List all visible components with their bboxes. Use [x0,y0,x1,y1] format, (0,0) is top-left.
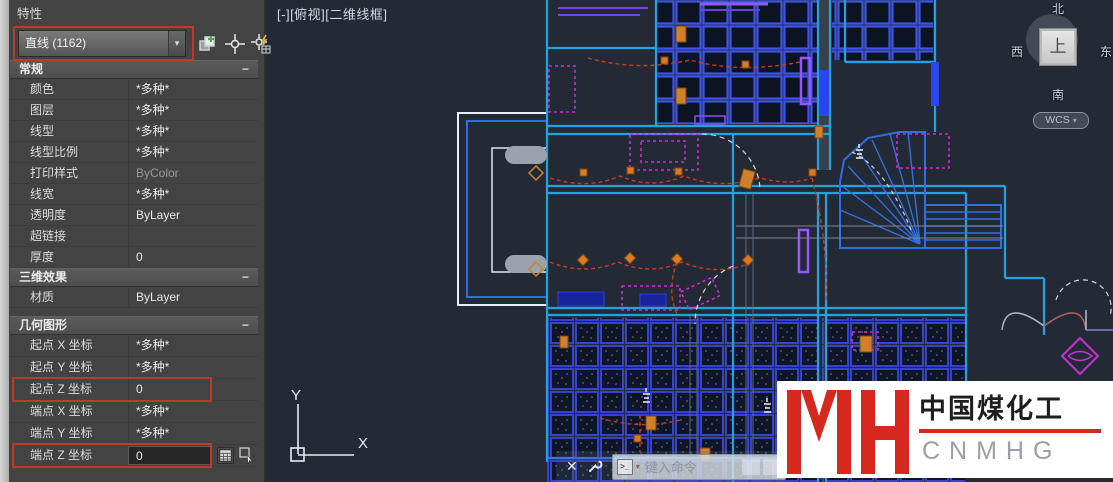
palette-title: 特性 [17,3,42,22]
section-title: 常规 [10,61,43,78]
section-title: 几何图形 [10,317,67,334]
property-label: 打印样式 [10,163,128,183]
yh-logo-icon [785,386,911,474]
property-label: 线型 [10,121,128,141]
close-icon[interactable]: ✕ [556,458,586,475]
palette-grip[interactable] [0,0,9,482]
customize-wrench-icon[interactable] [586,458,604,476]
wcs-dropdown[interactable]: WCS ▾ [1033,112,1089,129]
command-prompt-icon: >_ [617,459,633,475]
object-type-value: 直线 (1162) [19,31,168,56]
viewport-label: [-][俯视][二维线框] [277,4,388,23]
property-row[interactable]: 厚度0 [10,247,258,268]
collapse-icon[interactable]: − [242,61,258,78]
property-row[interactable]: 端点 Y 坐标*多种* [10,423,258,445]
command-placeholder: 键入命令 [645,457,739,476]
viewport-visual-style-menu[interactable]: [二维线框] [325,7,387,22]
command-history-button[interactable] [742,459,760,475]
property-label: 起点 Y 坐标 [10,357,128,378]
command-line-bar: ✕ >_ ▾ 键入命令 [556,451,786,482]
property-value[interactable]: 0 [128,247,258,267]
pick-point-icon[interactable] [239,447,256,464]
property-row[interactable]: 透明度ByLayer [10,205,258,226]
property-value[interactable]: *多种* [128,357,258,378]
property-row[interactable]: 图层*多种* [10,100,258,121]
property-section: 常规−颜色*多种*图层*多种*线型*多种*线型比例*多种*打印样式ByColor… [10,60,258,268]
watermark: 中国煤化工 CNMHG [777,381,1113,478]
prop-sections: 常规−颜色*多种*图层*多种*线型*多种*线型比例*多种*打印样式ByColor… [10,60,258,467]
property-value[interactable]: ByLayer [128,205,258,225]
section-title: 三维效果 [10,269,67,286]
collapse-icon[interactable]: − [242,269,258,286]
calculator-icon[interactable] [217,447,234,464]
properties-palette: 特性 直线 (1162) ▾ 常规−颜色*多种*图层*多种*线型*多种*线型比例… [0,0,266,482]
property-section: 三维效果−材质ByLayer [10,268,258,308]
property-row[interactable]: 材质ByLayer [10,287,258,308]
property-row[interactable]: 颜色*多种* [10,79,258,100]
pickadd-toggle-icon[interactable] [196,33,218,55]
property-value[interactable]: ByColor [128,163,258,183]
property-row[interactable]: 起点 Z 坐标0 [10,379,258,401]
object-type-dropdown[interactable]: 直线 (1162) ▾ [18,30,186,57]
viewcube-west-label[interactable]: 西 [1011,43,1023,60]
property-value[interactable]: *多种* [128,79,258,99]
collapse-icon[interactable]: − [242,317,258,334]
watermark-abbr: CNMHG [922,437,1061,466]
property-value[interactable]: *多种* [128,401,258,422]
ucs-x-label: X [358,435,368,452]
property-label: 线型比例 [10,142,128,162]
chevron-down-icon: ▾ [1073,116,1077,125]
property-row[interactable]: 起点 X 坐标*多种* [10,335,258,357]
section-header[interactable]: 三维效果− [10,268,258,287]
property-label: 线宽 [10,184,128,204]
property-row[interactable]: 端点 X 坐标*多种* [10,401,258,423]
property-label: 端点 X 坐标 [10,401,128,422]
recent-commands-chevron-icon[interactable]: ▾ [636,462,640,471]
property-label: 材质 [10,287,128,307]
viewport-controls-menu[interactable]: [-] [277,7,290,22]
property-row[interactable]: 线宽*多种* [10,184,258,205]
property-row[interactable]: 端点 Z 坐标0 [10,445,258,467]
chevron-down-icon[interactable]: ▾ [168,31,185,56]
viewcube[interactable]: 上 北 南 西 东 WCS ▾ [1014,2,1112,134]
autocad-window: [-][俯视][二维线框] 上 北 南 西 东 WCS ▾ Y X ✕ >_ ▾… [0,0,1113,482]
property-value[interactable]: *多种* [128,423,258,444]
property-label: 图层 [10,100,128,120]
property-label: 颜色 [10,79,128,99]
property-value[interactable]: *多种* [128,184,258,204]
ucs-y-label: Y [291,387,301,404]
property-value[interactable] [128,226,258,246]
property-label: 端点 Y 坐标 [10,423,128,444]
property-label: 透明度 [10,205,128,225]
property-row[interactable]: 超链接 [10,226,258,247]
property-value[interactable]: *多种* [128,121,258,141]
property-value[interactable]: *多种* [128,142,258,162]
property-label: 起点 Z 坐标 [10,379,128,400]
property-row[interactable]: 线型比例*多种* [10,142,258,163]
viewcube-south-label[interactable]: 南 [1052,86,1064,103]
property-value[interactable]: 0 [128,446,212,465]
quick-select-icon[interactable] [250,33,272,55]
property-row[interactable]: 线型*多种* [10,121,258,142]
property-label: 起点 X 坐标 [10,335,128,356]
property-section: 几何图形−起点 X 坐标*多种*起点 Y 坐标*多种*起点 Z 坐标0端点 X … [10,316,258,467]
property-label: 端点 Z 坐标 [10,445,128,466]
property-value[interactable]: *多种* [128,100,258,120]
property-row[interactable]: 打印样式ByColor [10,163,258,184]
property-value[interactable]: ByLayer [128,287,258,307]
command-input[interactable]: >_ ▾ 键入命令 [612,454,786,480]
property-label: 厚度 [10,247,128,267]
section-header[interactable]: 几何图形− [10,316,258,335]
select-objects-icon[interactable] [224,33,246,55]
viewcube-east-label[interactable]: 东 [1100,43,1112,60]
viewcube-top-face[interactable]: 上 [1039,28,1077,66]
viewcube-north-label[interactable]: 北 [1052,0,1064,17]
watermark-company-name: 中国煤化工 [919,387,1064,426]
property-label: 超链接 [10,226,128,246]
viewport-view-menu[interactable]: [俯视] [290,7,325,22]
property-value[interactable]: 0 [128,379,258,400]
ucs-icon: Y X [280,386,390,478]
property-row[interactable]: 起点 Y 坐标*多种* [10,357,258,379]
watermark-underline [919,429,1101,433]
property-value[interactable]: *多种* [128,335,258,356]
section-header[interactable]: 常规− [10,60,258,79]
